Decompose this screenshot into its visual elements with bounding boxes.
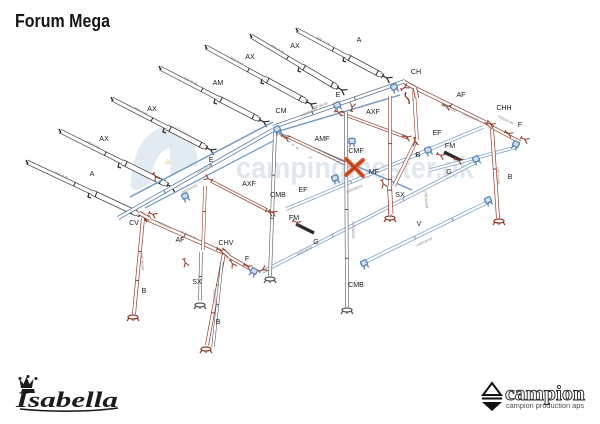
svg-text:CV: CV bbox=[129, 219, 139, 227]
svg-text:AX: AX bbox=[290, 42, 300, 50]
svg-text:B: B bbox=[508, 173, 513, 181]
svg-text:EF: EF bbox=[298, 186, 308, 194]
svg-text:AX: AX bbox=[147, 105, 157, 113]
svg-text:EF: EF bbox=[432, 129, 442, 137]
svg-text:SX: SX bbox=[192, 278, 202, 286]
svg-text:A: A bbox=[90, 170, 95, 178]
svg-text:CH: CH bbox=[411, 68, 421, 76]
svg-text:AF: AF bbox=[456, 91, 466, 99]
svg-text:G: G bbox=[313, 238, 319, 246]
svg-text:AM: AM bbox=[213, 79, 224, 87]
svg-text:CMB: CMB bbox=[270, 191, 286, 199]
svg-text:campion production aps: campion production aps bbox=[506, 401, 584, 410]
svg-text:FM: FM bbox=[445, 142, 455, 150]
svg-text:AX: AX bbox=[245, 53, 255, 61]
svg-text:E: E bbox=[209, 156, 214, 164]
svg-text:B: B bbox=[216, 318, 221, 326]
svg-text:CMB: CMB bbox=[348, 281, 364, 289]
svg-text:AX: AX bbox=[99, 135, 109, 143]
svg-text:AMF: AMF bbox=[315, 135, 331, 143]
svg-text:SX: SX bbox=[395, 191, 405, 199]
svg-text:V: V bbox=[417, 220, 422, 228]
svg-text:CMF: CMF bbox=[348, 147, 364, 155]
svg-text:F: F bbox=[245, 255, 250, 263]
svg-text:F: F bbox=[518, 121, 523, 129]
svg-text:B: B bbox=[416, 151, 421, 159]
svg-text:CHV: CHV bbox=[219, 239, 234, 247]
svg-text:MF: MF bbox=[369, 168, 380, 176]
svg-text:G: G bbox=[446, 168, 452, 176]
svg-text:AF: AF bbox=[175, 236, 185, 244]
svg-text:Forum Mega: Forum Mega bbox=[15, 11, 111, 31]
svg-text:PREMIUM: PREMIUM bbox=[351, 221, 355, 238]
svg-text:AXF: AXF bbox=[366, 108, 380, 116]
svg-text:Isabella: Isabella bbox=[15, 387, 118, 412]
svg-text:B: B bbox=[142, 287, 147, 295]
svg-text:CHH: CHH bbox=[496, 104, 511, 112]
svg-text:CM: CM bbox=[275, 107, 286, 115]
svg-text:A: A bbox=[357, 36, 362, 44]
svg-text:AXF: AXF bbox=[242, 180, 256, 188]
svg-text:FM: FM bbox=[289, 214, 299, 222]
svg-text:E: E bbox=[336, 91, 341, 99]
